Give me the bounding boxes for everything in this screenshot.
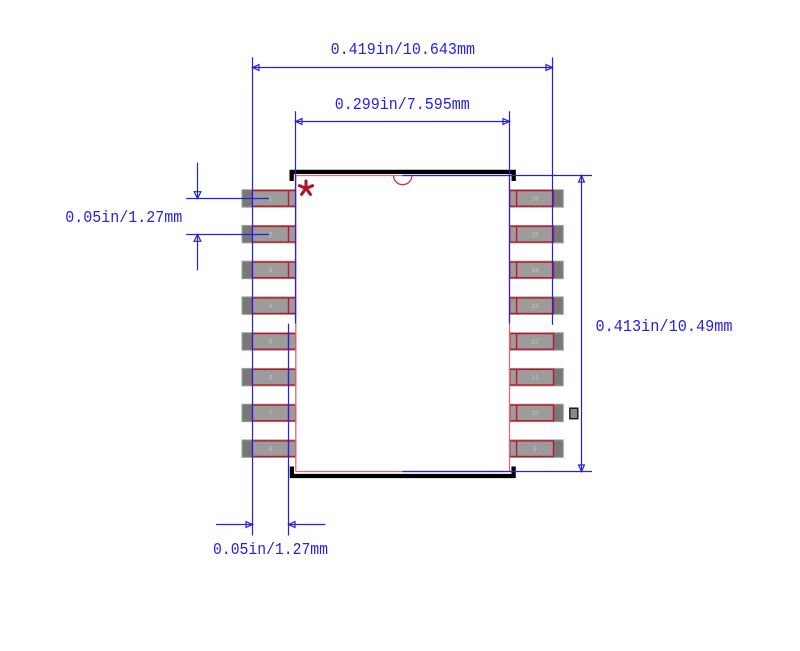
svg-text:12: 12 — [531, 339, 539, 346]
svg-text:14: 14 — [531, 267, 539, 274]
svg-text:16: 16 — [531, 196, 539, 203]
svg-text:6: 6 — [269, 375, 273, 382]
svg-text:11: 11 — [531, 375, 539, 382]
svg-text:10: 10 — [531, 410, 539, 417]
svg-text:0.05in/1.27mm: 0.05in/1.27mm — [65, 209, 182, 228]
svg-text:0.413in/10.49mm: 0.413in/10.49mm — [596, 318, 733, 337]
svg-text:5: 5 — [269, 339, 273, 346]
svg-text:1: 1 — [269, 196, 273, 203]
svg-text:3: 3 — [269, 267, 273, 274]
svg-text:15: 15 — [531, 232, 539, 239]
svg-text:7: 7 — [269, 410, 273, 417]
svg-text:8: 8 — [269, 446, 273, 453]
svg-text:2: 2 — [269, 232, 273, 239]
svg-text:0.05in/1.27mm: 0.05in/1.27mm — [213, 541, 328, 560]
svg-text:13: 13 — [531, 303, 539, 310]
svg-text:0.419in/10.643mm: 0.419in/10.643mm — [331, 41, 475, 60]
svg-text:9: 9 — [533, 446, 537, 453]
svg-text:4: 4 — [269, 303, 273, 310]
svg-text:0.299in/7.595mm: 0.299in/7.595mm — [335, 96, 470, 115]
